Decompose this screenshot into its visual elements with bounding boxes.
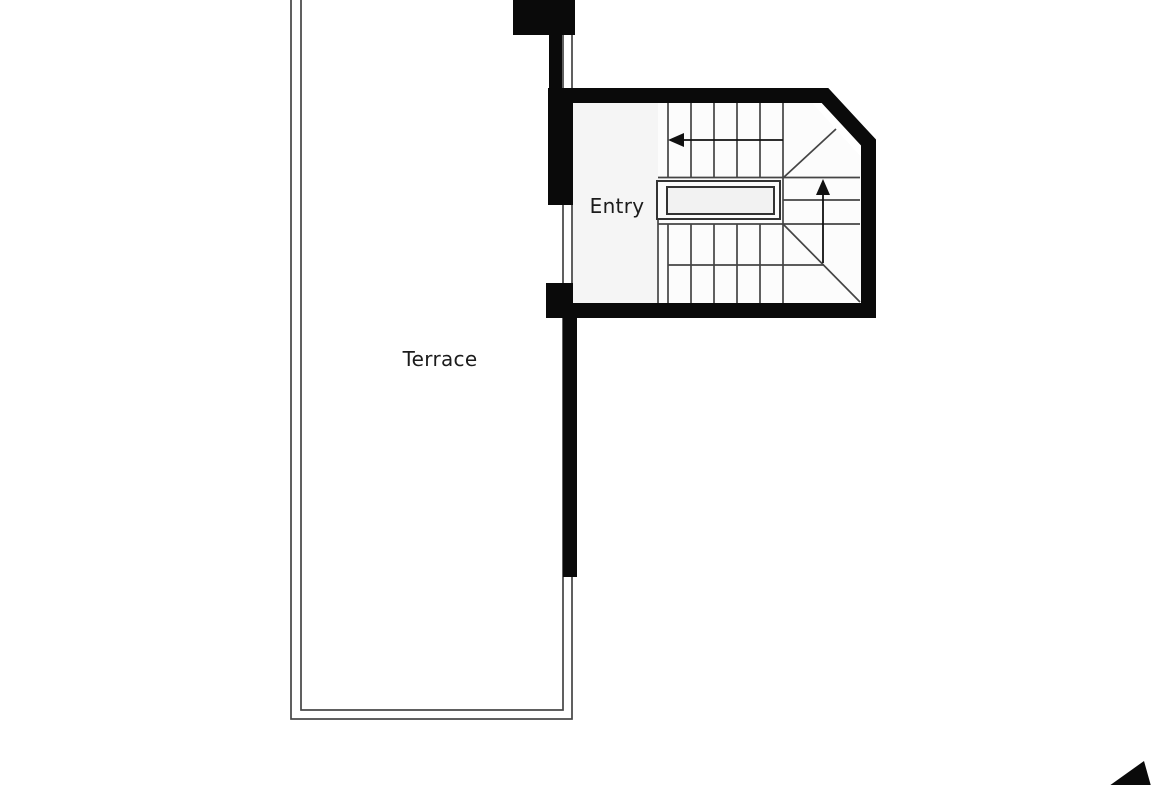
north-arrow-icon <box>1109 761 1151 785</box>
stairwell-void <box>657 181 780 219</box>
terrace-room: Terrace <box>291 0 572 719</box>
entry-left-wall-upper <box>548 95 573 205</box>
entry-label: Entry <box>590 194 645 218</box>
terrace-right-wall <box>563 318 577 577</box>
upper-left-wall-bar <box>549 30 562 90</box>
floor-plan-page: Terrace Entry <box>0 0 1170 785</box>
entry-left-wall-lower <box>546 283 573 305</box>
terrace-label: Terrace <box>402 347 478 371</box>
floor-plan-canvas: Terrace Entry <box>0 0 1170 785</box>
stairwell-void-inner <box>667 187 774 214</box>
top-wall-stub <box>513 0 575 35</box>
